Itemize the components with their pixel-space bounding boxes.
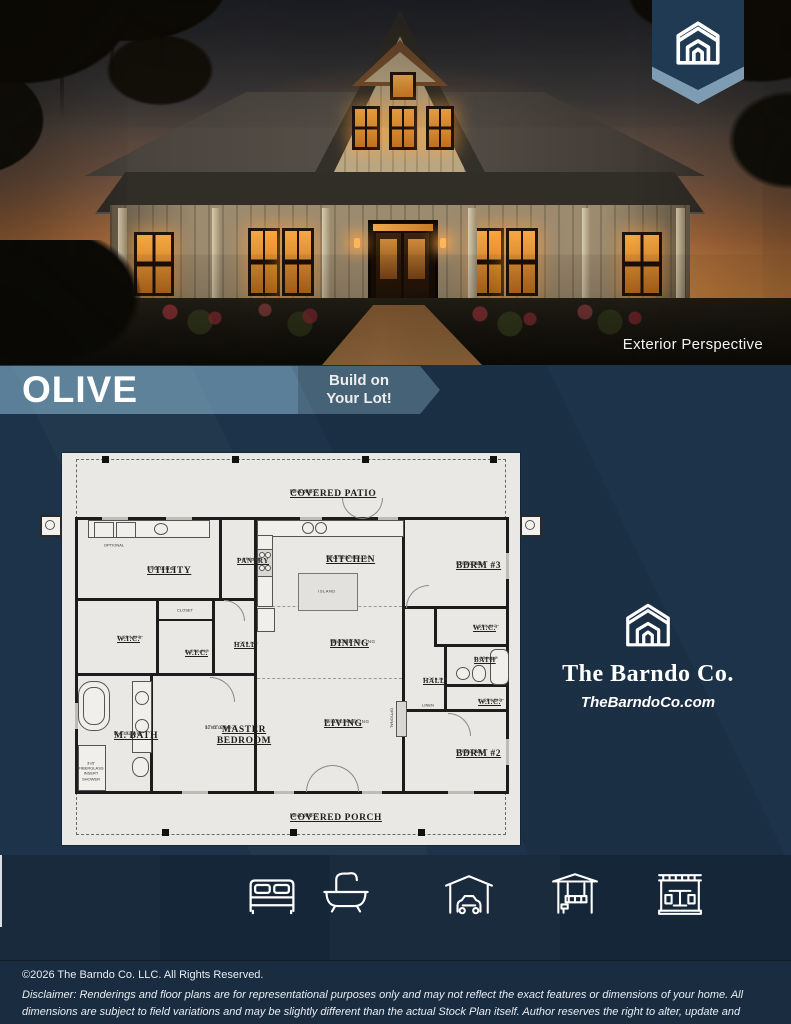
patio-column	[232, 456, 239, 463]
porch-icon	[550, 871, 600, 917]
vanity-sink	[135, 691, 149, 705]
door-arc-bdrm2	[448, 713, 471, 736]
washer	[94, 522, 114, 538]
wall	[156, 598, 159, 676]
porch-column	[418, 829, 425, 836]
patio-column	[102, 456, 109, 463]
tagline-line2: Your Lot!	[298, 390, 420, 408]
brand-website: TheBarndoCo.com	[540, 694, 756, 711]
master-tub-inner	[83, 687, 105, 725]
barn-logo-icon	[672, 16, 724, 68]
utility-sink	[154, 523, 168, 535]
porch-column	[290, 829, 297, 836]
optional-fireplace	[396, 701, 407, 737]
stats-bar: 1884 Living sf 3 2	[0, 855, 791, 960]
plan-name: OLIVE	[22, 369, 138, 411]
porch-column	[162, 829, 169, 836]
wall	[402, 709, 509, 712]
door-arc-hall	[224, 600, 245, 621]
bathtub-icon	[320, 869, 372, 915]
garage-icon	[444, 873, 494, 917]
floor-plan: VAULTEDCOVERED PATIO55'-5" X 8'-0" 9' CE…	[62, 453, 520, 845]
patio-column	[490, 456, 497, 463]
bed-icon	[245, 873, 299, 915]
brand-name: The Barndo Co.	[540, 661, 756, 688]
window-mark	[362, 791, 382, 794]
wall	[156, 619, 215, 621]
wall	[75, 673, 257, 676]
wall	[434, 606, 437, 647]
island-label: ISLAND	[318, 588, 335, 593]
window-mark	[448, 791, 474, 794]
door-arc-entry-right	[332, 765, 359, 792]
copyright-text: ©2026 The Barndo Co. LLC. All Rights Res…	[22, 969, 263, 981]
wall	[212, 598, 215, 676]
corner-column-right	[520, 515, 542, 537]
tagline-line1: Build on	[298, 372, 420, 390]
linen-label: LINEN	[422, 702, 434, 707]
patio-column	[362, 456, 369, 463]
door-arc-master	[210, 677, 235, 702]
master-toilet	[132, 757, 149, 777]
window-mark	[506, 739, 509, 765]
kitchen-counter-top	[257, 520, 404, 537]
photo-caption: Exterior Perspective	[623, 336, 763, 353]
stats-divider	[0, 855, 2, 927]
window-mark	[506, 553, 509, 579]
wall	[402, 517, 405, 794]
bath-toilet	[472, 665, 486, 682]
kitchen-sink	[315, 522, 327, 534]
optional-label-fireplace: OPTIONAL	[389, 708, 394, 728]
bath-sink	[456, 667, 470, 680]
patio-icon	[654, 871, 706, 917]
barn-logo-icon	[620, 600, 676, 648]
shower-note: 3'x5' FIBERGLASS INSERT SHOWER	[78, 761, 104, 782]
brand-block: The Barndo Co. TheBarndoCo.com	[540, 600, 756, 711]
closet-label: CLOSET	[177, 607, 193, 612]
window-mark	[274, 791, 294, 794]
door-arc-bdrm3	[406, 585, 429, 608]
ceiling-break	[257, 678, 402, 679]
flyer-page: Exterior Perspective OLIVE Build on Your…	[0, 0, 791, 1024]
corner-column-left	[40, 515, 62, 537]
refrigerator	[257, 608, 275, 632]
kitchen-sink	[302, 522, 314, 534]
wall	[219, 517, 222, 601]
burner	[265, 565, 271, 571]
dryer	[116, 522, 136, 538]
disclaimer-text: Disclaimer: Renderings and floor plans a…	[22, 987, 774, 1024]
footer: ©2026 The Barndo Co. LLC. All Rights Res…	[0, 960, 791, 1024]
tagline: Build on Your Lot!	[298, 372, 420, 408]
door-arc-entry-left	[306, 765, 333, 792]
optional-label-utility: OPTIONAL	[104, 542, 124, 547]
window-mark	[182, 791, 208, 794]
